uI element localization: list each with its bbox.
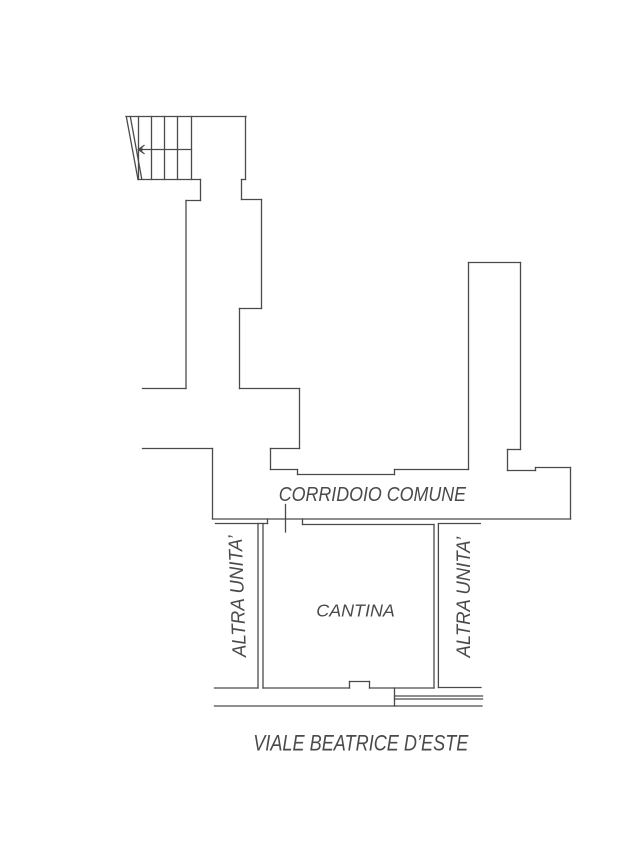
- svg-text:VIALE BEATRICE D’ESTE: VIALE BEATRICE D’ESTE: [253, 731, 468, 756]
- svg-text:ALTRA UNITA’: ALTRA UNITA’: [225, 534, 251, 658]
- svg-text:ALTRA UNITA’: ALTRA UNITA’: [453, 536, 475, 658]
- svg-text:CANTINA: CANTINA: [316, 600, 395, 620]
- svg-text:CORRIDOIO COMUNE: CORRIDOIO COMUNE: [279, 484, 467, 506]
